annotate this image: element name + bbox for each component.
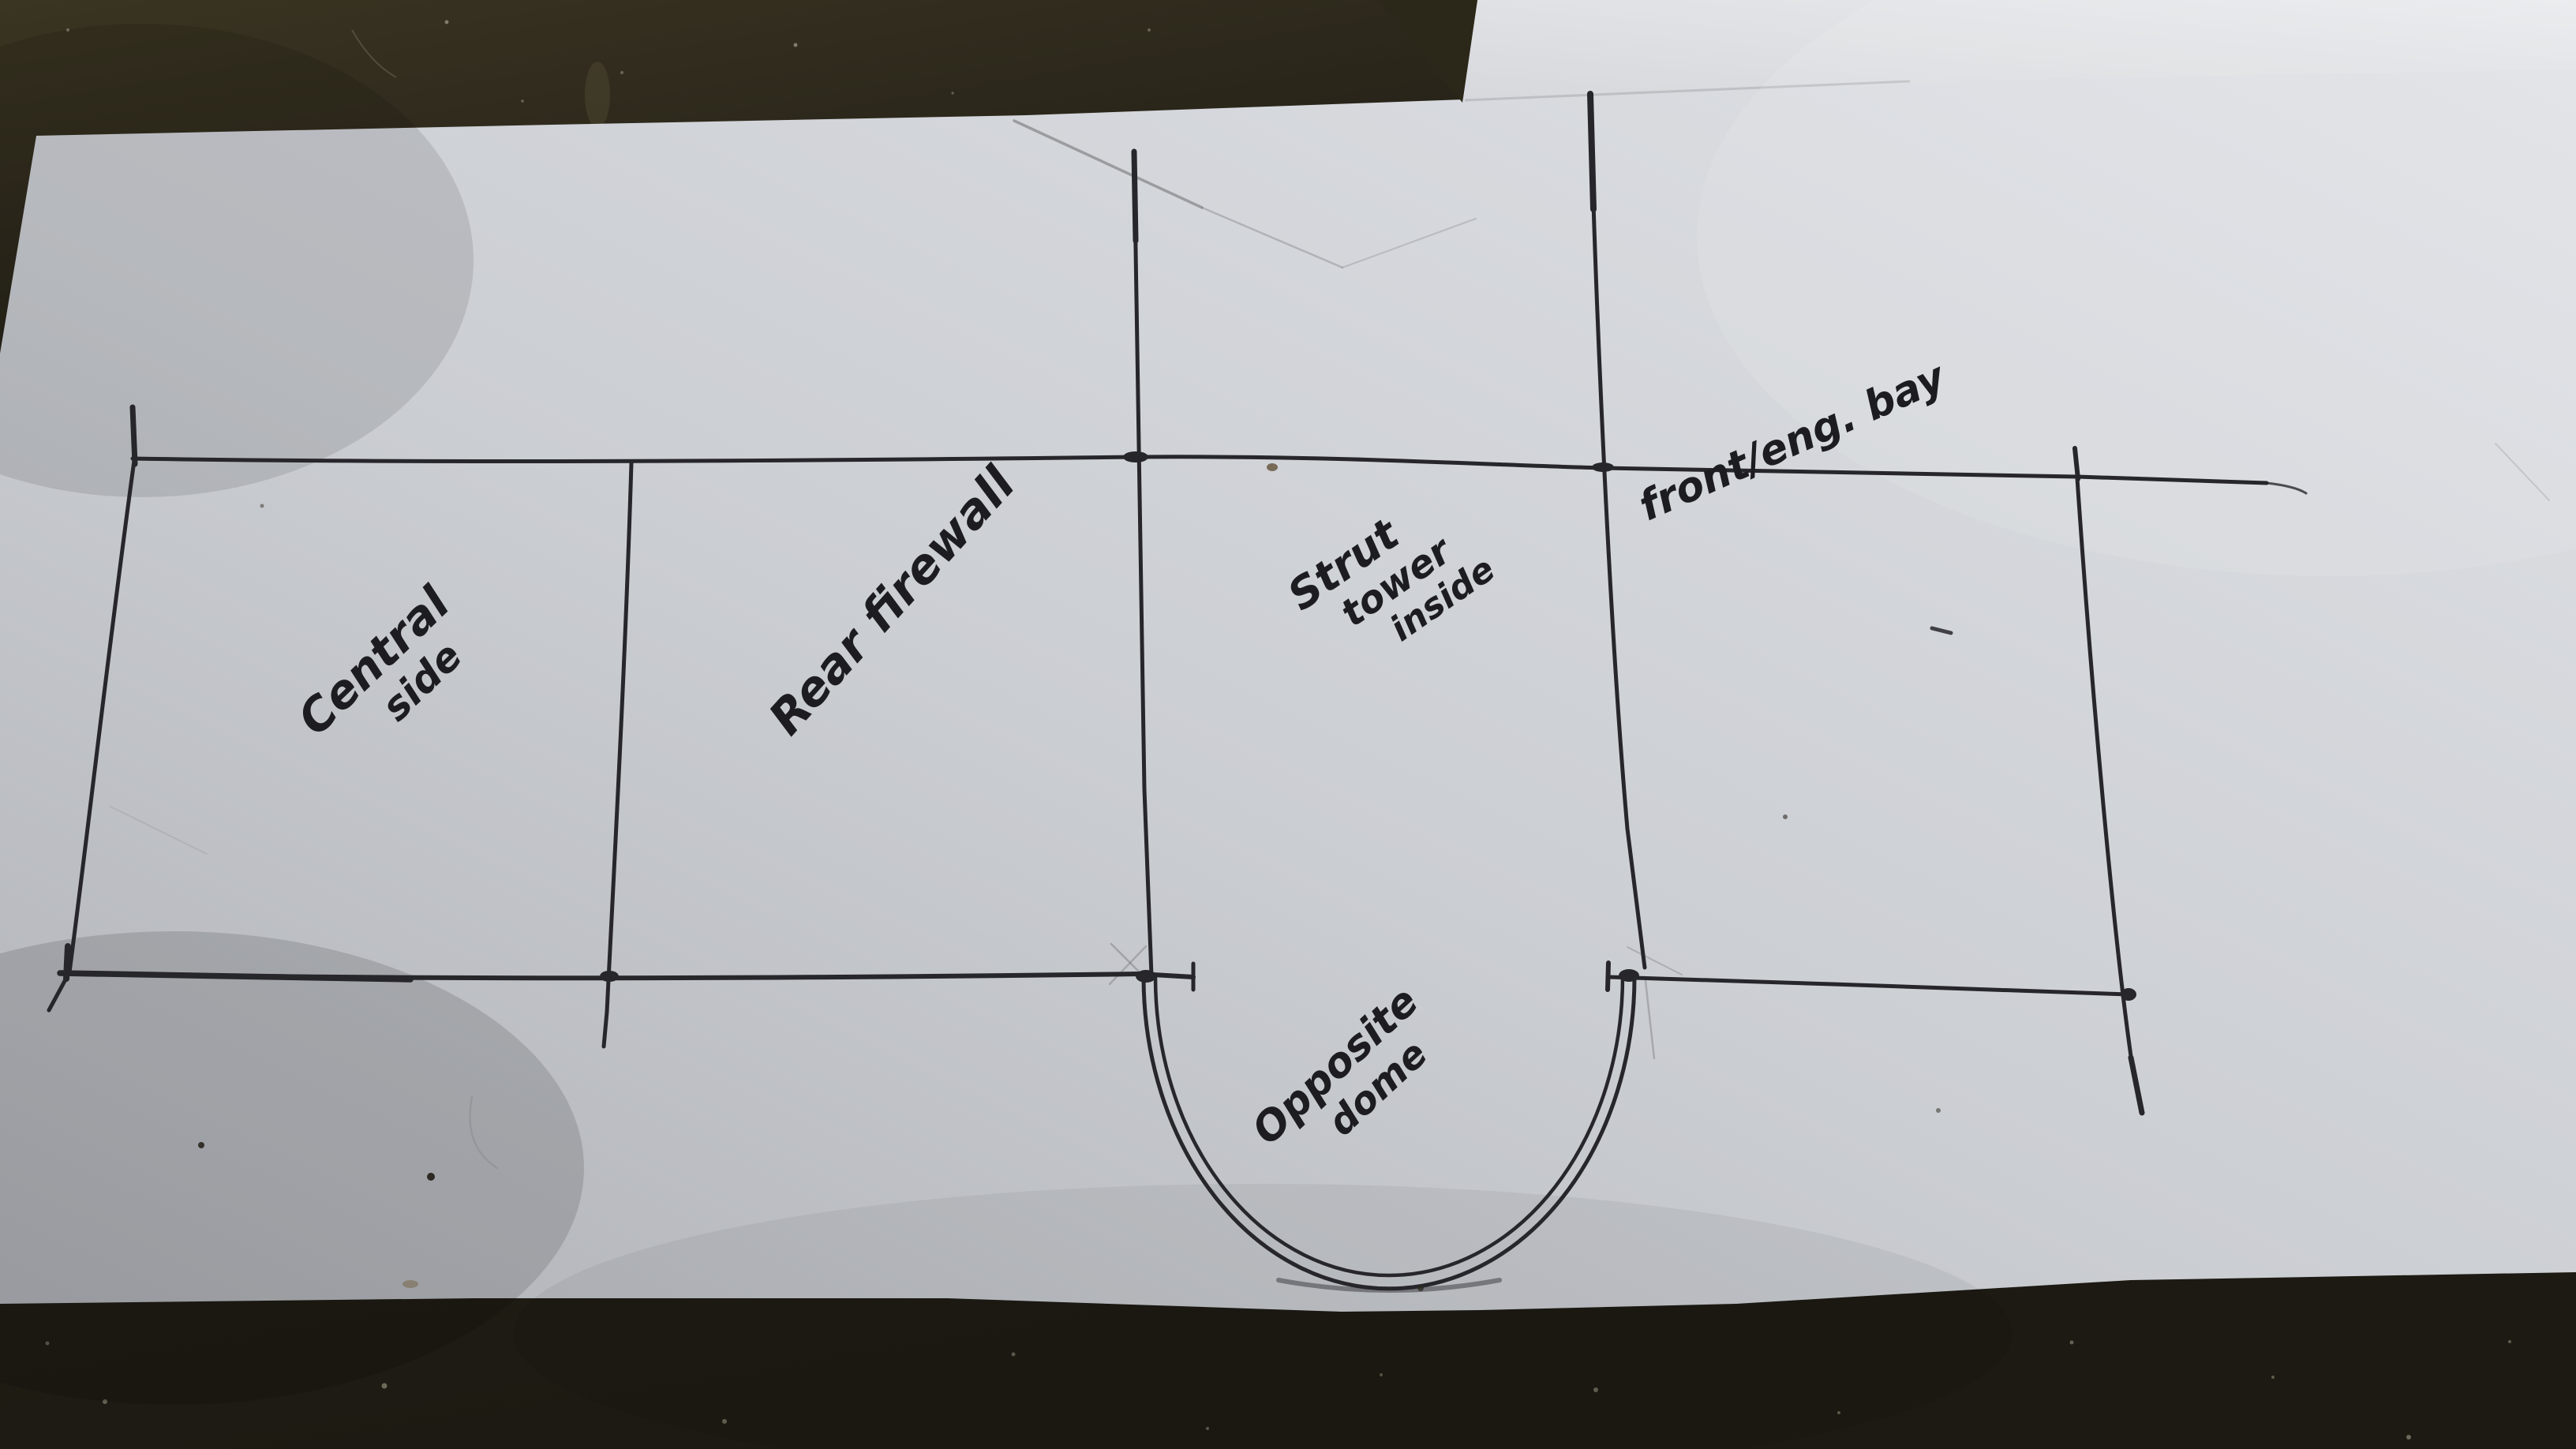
floor-speck <box>521 99 524 103</box>
speck <box>260 504 264 508</box>
floor-speck <box>445 21 449 24</box>
speck <box>198 1142 204 1148</box>
speck <box>1783 814 1788 819</box>
speck <box>427 1173 435 1181</box>
tick-top-left <box>133 407 135 464</box>
speck <box>1936 1108 1941 1113</box>
floor-speck <box>1148 28 1151 32</box>
divider-line-3-thick-top <box>1590 94 1593 209</box>
template-drawing-svg: Central side Rear firewall Strut tower i… <box>0 0 2576 1449</box>
floor-speck <box>951 92 953 94</box>
floor-speck <box>2508 1340 2511 1343</box>
floor-speck <box>2271 1376 2275 1379</box>
floor-speck <box>2070 1341 2074 1345</box>
divider-line-2-thick-top <box>1134 152 1136 241</box>
floor-speck <box>382 1383 388 1389</box>
floor-speck <box>2406 1435 2411 1440</box>
ink-blob <box>1123 451 1148 462</box>
smudge <box>402 1280 418 1288</box>
ink-blob <box>2121 988 2136 1001</box>
floor-smudge <box>585 62 610 128</box>
tick-top-right <box>2075 448 2078 479</box>
floor-speck <box>620 71 623 74</box>
floor-speck <box>794 43 798 47</box>
ink-blob <box>1619 969 1639 982</box>
tick-bottom-left <box>66 946 68 979</box>
photo-of-template-sketch: Central side Rear firewall Strut tower i… <box>0 0 2576 1449</box>
tick-bottom-mid-right <box>1608 963 1608 990</box>
brown-fleck <box>1267 463 1278 471</box>
speck <box>1417 1285 1424 1291</box>
ink-blob <box>600 971 619 982</box>
ink-blob <box>1592 462 1614 472</box>
ink-blob <box>1136 970 1156 983</box>
